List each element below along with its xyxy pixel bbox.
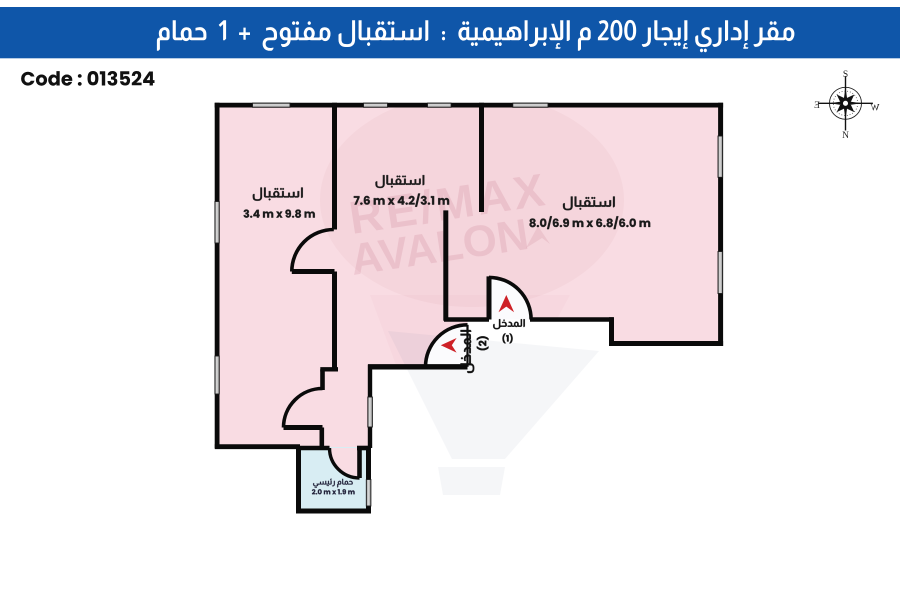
- svg-text:S: S: [843, 70, 848, 80]
- svg-text:N: N: [842, 131, 849, 141]
- svg-text:W: W: [870, 103, 879, 113]
- svg-text:E: E: [814, 101, 820, 111]
